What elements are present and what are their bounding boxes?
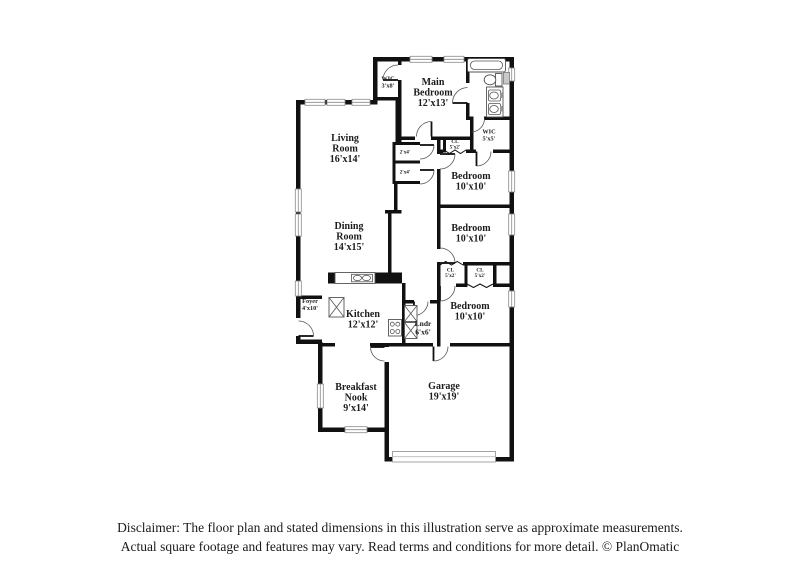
label-main-bedroom: Main xyxy=(422,77,445,88)
label-wic-top-dims: 3'x8' xyxy=(382,83,395,90)
label-bedroom1: Bedroom xyxy=(451,171,491,182)
bathtub-icon xyxy=(468,59,506,73)
label-cl-right-dims: 5'x2' xyxy=(475,273,486,279)
label-main-bedroom-2: Bedroom xyxy=(413,88,453,99)
bedroom3-door-arc xyxy=(440,286,455,301)
bedroom1-closet-door-arc xyxy=(477,152,492,167)
bedroom2-door-arc xyxy=(440,248,455,263)
label-wic-right-dims: 5'x5' xyxy=(483,136,496,143)
label-dining-room-2: Room xyxy=(336,232,362,243)
label-foyer: Foyer xyxy=(302,298,318,305)
label-bedroom1-dims: 10'x10' xyxy=(456,182,487,193)
label-bedroom3: Bedroom xyxy=(450,301,490,312)
sink-vanity-icon xyxy=(487,87,504,117)
label-closet-a: 2'x4' xyxy=(400,150,411,156)
bath-niche xyxy=(504,73,510,85)
label-breakfast-nook-2: Nook xyxy=(345,393,368,404)
label-living-room: Living xyxy=(331,133,359,144)
label-main-bedroom-dims: 12'x13' xyxy=(418,98,449,109)
label-dining-room-dims: 14'x15' xyxy=(334,242,365,253)
main-bedroom-door-arc xyxy=(417,122,432,137)
disclaimer: Disclaimer: The floor plan and stated di… xyxy=(0,518,800,556)
label-living-room-2: Room xyxy=(332,144,358,155)
label-breakfast-nook: Breakfast xyxy=(335,382,377,393)
label-garage: Garage xyxy=(428,381,460,392)
label-dining-room: Dining xyxy=(335,221,364,232)
label-bedroom2: Bedroom xyxy=(451,223,491,234)
pantry-icon xyxy=(329,298,344,318)
toilet-icon xyxy=(484,74,502,87)
walls xyxy=(296,57,514,462)
kitchen-sink-icon xyxy=(335,273,375,284)
garage-entry-door-arc xyxy=(434,347,449,362)
label-foyer-dims: 4'x10' xyxy=(302,305,318,312)
hall-cl-bifold xyxy=(444,150,466,154)
label-cl-hall-dims: 5'x2' xyxy=(450,144,461,150)
cl-right-bifold xyxy=(467,284,493,288)
disclaimer-line-2: Actual square footage and features may v… xyxy=(0,537,800,556)
label-living-room-dims: 16'x14' xyxy=(330,154,361,165)
floor-plan-drawing: WIC 3'x8' Main Bedroom 12'x13' WIC 5'x5'… xyxy=(0,0,800,582)
label-garage-dims: 19'x19' xyxy=(429,392,460,403)
label-bedroom3-dims: 10'x10' xyxy=(455,312,486,323)
label-breakfast-nook-dims: 9'x14' xyxy=(343,403,369,414)
windows xyxy=(295,56,514,432)
bedroom1-door-arc xyxy=(440,154,455,169)
bath-door-arc xyxy=(453,88,468,104)
hall-closet-b-door-arc xyxy=(420,170,434,184)
label-laundry-dims: 6'x6' xyxy=(415,328,430,337)
floor-plan-page: WIC 3'x8' Main Bedroom 12'x13' WIC 5'x5'… xyxy=(0,0,800,582)
hall-closet-a-door-arc xyxy=(420,145,434,159)
nook-door-arc xyxy=(371,347,385,361)
label-bedroom2-dims: 10'x10' xyxy=(456,234,487,245)
entry-door-arc xyxy=(299,321,314,336)
garage-door xyxy=(393,452,496,463)
label-kitchen: Kitchen xyxy=(346,309,380,320)
label-kitchen-dims: 12'x12' xyxy=(348,320,379,331)
disclaimer-line-1: Disclaimer: The floor plan and stated di… xyxy=(0,518,800,537)
label-wic-top: WIC xyxy=(381,76,395,83)
stove-icon xyxy=(389,320,402,337)
label-closet-b: 2'x4' xyxy=(400,170,411,176)
label-cl-left-dims: 5'x2' xyxy=(445,273,456,279)
label-wic-right: WIC xyxy=(482,129,496,136)
